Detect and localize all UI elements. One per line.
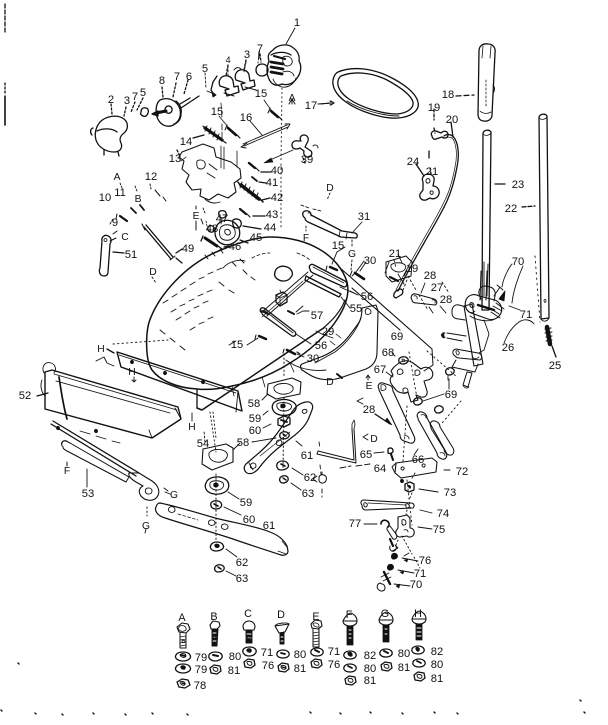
svg-text:54: 54 [197,438,209,450]
svg-text:48: 48 [206,223,218,235]
svg-text:28: 28 [440,294,452,306]
svg-text:1: 1 [294,17,300,29]
svg-text:77: 77 [349,518,361,530]
svg-text:42: 42 [271,192,283,204]
svg-text:7: 7 [132,91,138,103]
svg-text:49: 49 [182,243,194,255]
svg-text:15: 15 [211,106,223,118]
svg-text:44: 44 [264,222,276,234]
svg-text:75: 75 [433,524,445,536]
svg-text:G: G [381,608,389,620]
svg-text:7: 7 [257,43,263,55]
svg-text:21: 21 [389,248,401,260]
svg-text:82: 82 [364,650,376,662]
svg-text:D: D [326,377,333,388]
svg-text:H: H [414,608,422,620]
svg-text:G: G [348,249,356,260]
svg-text:20: 20 [446,114,458,126]
svg-text:4: 4 [225,55,230,65]
svg-text:15: 15 [332,240,344,252]
svg-text:51: 51 [125,249,137,261]
svg-text:58: 58 [248,398,260,410]
svg-text:6: 6 [186,71,192,83]
svg-text:67: 67 [374,364,386,376]
svg-text:61: 61 [301,450,313,462]
svg-text:2: 2 [108,94,114,106]
svg-text:61: 61 [263,520,275,532]
svg-text:45: 45 [250,232,262,244]
svg-text:59: 59 [249,413,261,425]
svg-text:79: 79 [195,664,207,676]
svg-text:76: 76 [262,660,274,672]
svg-text:B: B [210,611,217,623]
svg-text:82: 82 [431,646,443,658]
svg-text:76: 76 [419,555,431,567]
svg-text:25: 25 [549,360,561,372]
svg-text:18: 18 [442,89,454,101]
svg-text:81: 81 [294,663,306,675]
svg-text:31: 31 [358,211,370,223]
svg-text:15: 15 [255,88,267,100]
svg-text:76: 76 [328,659,340,671]
svg-text:A: A [114,172,121,183]
svg-text:28: 28 [363,404,375,416]
svg-text:F: F [303,233,309,244]
svg-text:73: 73 [444,487,456,499]
svg-text:24: 24 [407,156,419,168]
svg-text:12: 12 [145,171,157,183]
svg-text:13: 13 [169,153,181,165]
svg-text:52: 52 [19,390,31,402]
svg-text:68: 68 [382,347,394,359]
svg-text:F: F [346,609,353,621]
svg-text:81: 81 [364,675,376,687]
svg-text:D: D [326,183,333,194]
svg-text:56: 56 [315,340,327,352]
svg-text:5: 5 [202,63,208,75]
svg-text:58: 58 [237,437,249,449]
svg-text:43: 43 [266,209,278,221]
svg-text:69: 69 [445,389,457,401]
svg-text:71: 71 [261,647,273,659]
svg-text:27: 27 [431,282,443,294]
svg-text:8: 8 [159,75,165,87]
svg-text:F: F [64,466,70,477]
svg-text:22: 22 [505,203,517,215]
svg-text:H: H [188,422,195,433]
svg-text:69: 69 [391,331,403,343]
svg-text:62: 62 [304,472,316,484]
svg-text:28: 28 [424,270,436,282]
svg-text:19: 19 [406,263,418,275]
svg-text:79: 79 [195,652,207,664]
svg-text:63: 63 [302,488,314,500]
svg-text:E: E [193,211,200,222]
svg-text:G: G [170,490,178,501]
svg-text:41: 41 [266,177,278,189]
svg-text:40: 40 [271,165,283,177]
svg-text:14: 14 [180,136,192,148]
svg-text:H: H [128,367,135,378]
svg-text:80: 80 [229,651,241,663]
svg-text:29: 29 [322,326,334,338]
svg-text:D: D [277,609,285,621]
svg-text:11: 11 [114,187,126,199]
svg-text:15: 15 [231,339,243,351]
svg-text:21: 21 [426,166,438,178]
svg-text:3: 3 [244,49,250,61]
svg-text:80: 80 [398,648,410,660]
svg-text:19: 19 [428,102,440,114]
svg-text:E: E [366,381,373,392]
svg-text:57: 57 [311,310,323,322]
svg-text:10: 10 [99,192,111,204]
svg-text:80: 80 [364,663,376,675]
svg-text:G: G [142,521,150,532]
svg-text:81: 81 [228,665,240,677]
svg-text:A: A [178,612,186,624]
svg-text:30: 30 [364,255,376,267]
svg-text:72: 72 [456,466,468,478]
svg-text:E: E [312,611,319,623]
svg-text:D: D [149,267,156,278]
svg-text:D: D [370,434,377,445]
svg-text:B: B [135,194,142,205]
svg-text:70: 70 [410,579,422,591]
svg-text:81: 81 [398,662,410,674]
svg-text:71: 71 [520,309,532,321]
svg-text:53: 53 [82,488,94,500]
svg-text:39: 39 [301,154,313,166]
svg-text:60: 60 [249,425,261,437]
svg-text:66: 66 [412,454,424,466]
svg-text:26: 26 [502,342,514,354]
svg-text:74: 74 [437,508,449,520]
svg-text:55: 55 [350,303,362,315]
svg-text:80: 80 [431,659,443,671]
svg-text:23: 23 [512,179,524,191]
svg-text:C: C [121,232,129,243]
svg-text:C: C [244,608,252,620]
svg-text:17: 17 [305,100,317,112]
svg-text:60: 60 [243,514,255,526]
svg-text:62: 62 [236,557,248,569]
svg-text:59: 59 [240,497,252,509]
svg-text:78: 78 [194,680,206,692]
svg-text:H: H [97,344,104,355]
svg-text:30: 30 [307,353,319,365]
svg-text:63: 63 [236,573,248,585]
svg-text:65: 65 [360,449,372,461]
svg-text:5: 5 [140,87,146,99]
svg-text:3: 3 [124,95,130,107]
svg-text:9: 9 [112,217,118,229]
svg-text:80: 80 [294,649,306,661]
svg-text:16: 16 [240,112,252,124]
svg-text:71: 71 [328,646,340,658]
svg-text:64: 64 [374,463,386,475]
svg-text:A: A [289,93,296,104]
svg-text:46: 46 [229,241,241,253]
svg-text:56: 56 [361,291,373,303]
svg-text:7: 7 [174,71,180,83]
svg-text:81: 81 [431,673,443,685]
svg-text:70: 70 [512,256,524,268]
